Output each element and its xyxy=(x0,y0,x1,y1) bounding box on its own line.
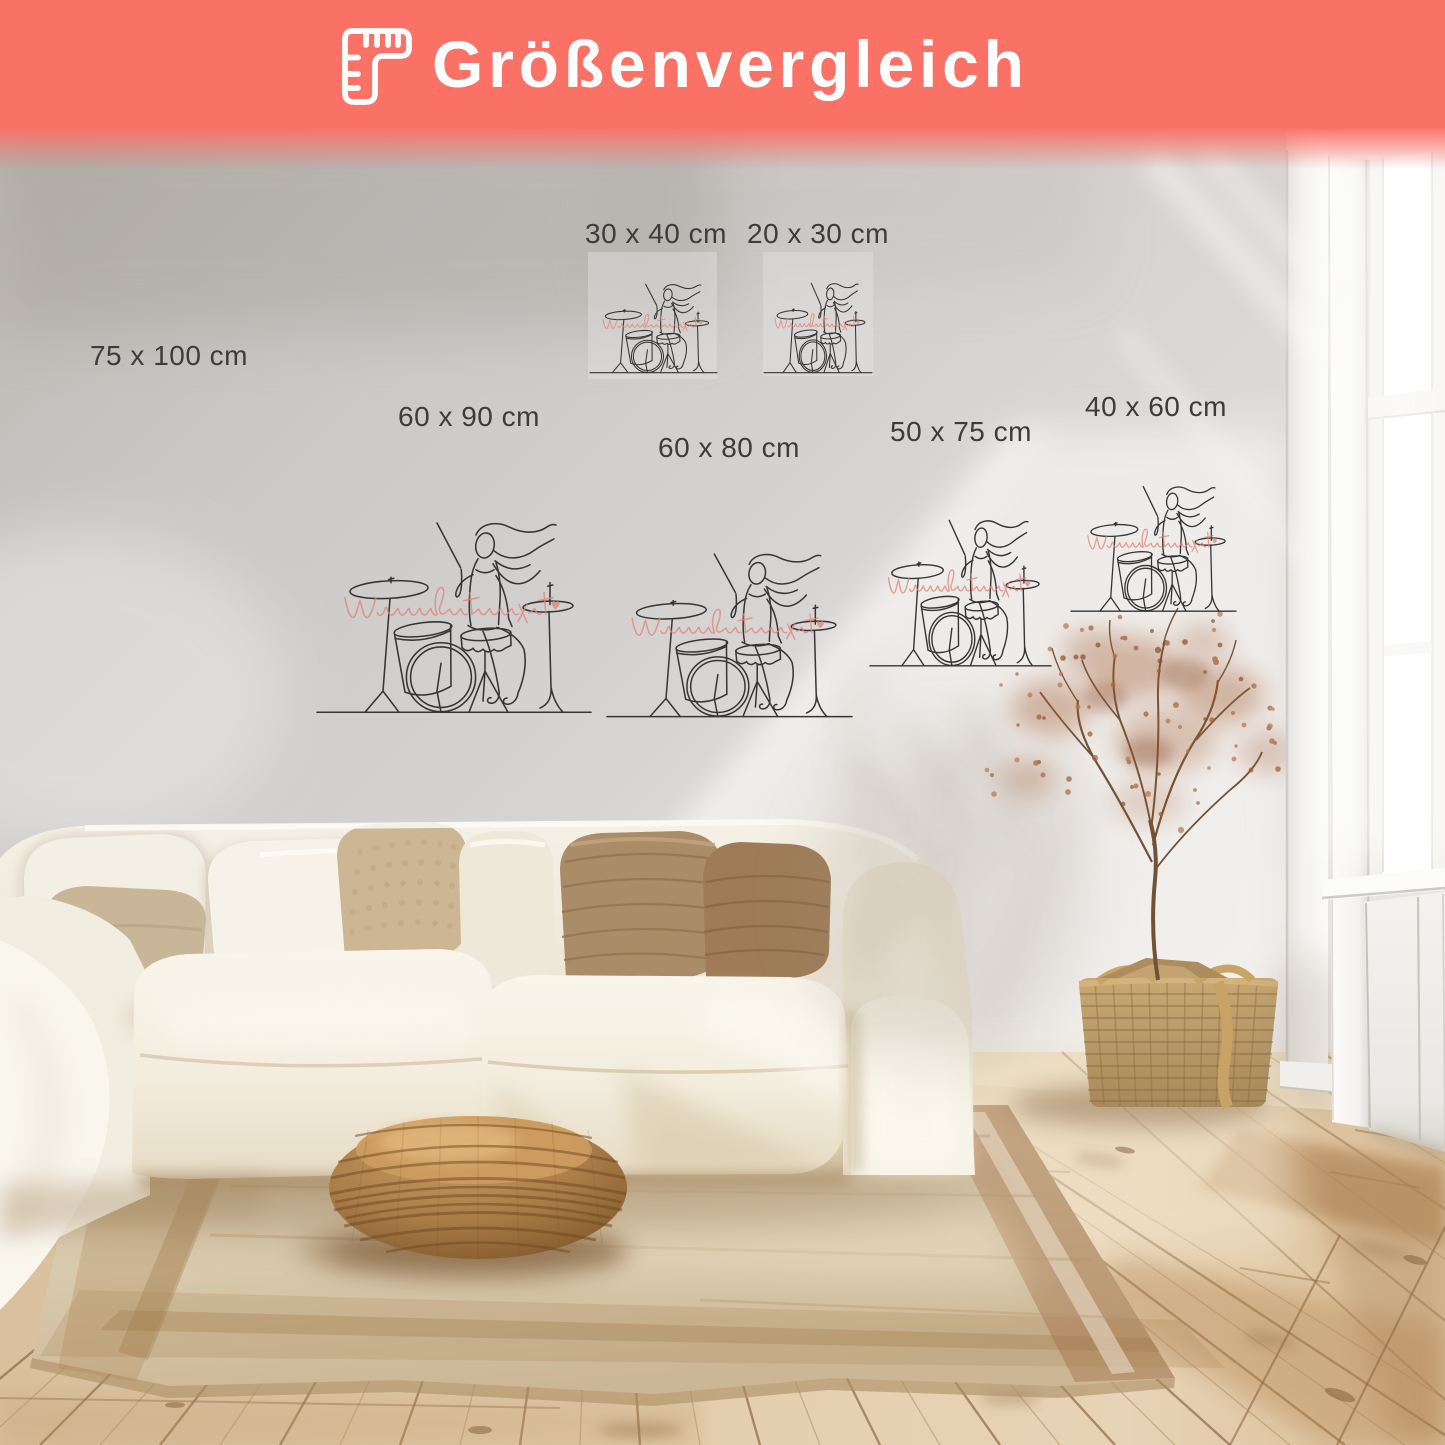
svg-text:Größenvergleich: Größenvergleich xyxy=(432,27,1024,101)
svg-text:60 x 90 cm: 60 x 90 cm xyxy=(398,401,540,432)
svg-text:50 x 75 cm: 50 x 75 cm xyxy=(890,416,1032,447)
svg-text:30 x 40 cm: 30 x 40 cm xyxy=(585,218,727,249)
svg-text:40 x 60 cm: 40 x 60 cm xyxy=(1085,391,1227,422)
svg-text:75 x 100 cm: 75 x 100 cm xyxy=(90,340,248,371)
svg-text:60 x 80 cm: 60 x 80 cm xyxy=(658,432,800,463)
svg-text:20 x 30 cm: 20 x 30 cm xyxy=(747,218,889,249)
